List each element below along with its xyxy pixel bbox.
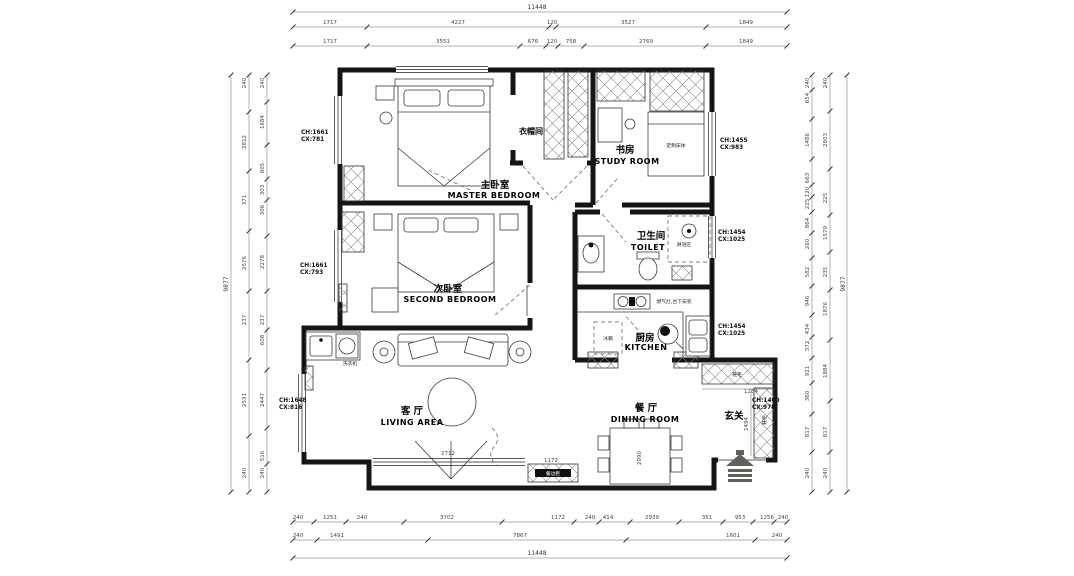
chx-left-top-ch: CH:1661: [301, 130, 329, 136]
doors: [415, 166, 638, 479]
chx-right-entry-ch: CH:1460: [752, 398, 780, 404]
sideboard-label: 餐边柜: [546, 470, 561, 477]
room-label-living-zh: 客 厅: [400, 405, 424, 417]
master-bed: [376, 79, 493, 186]
dim-label: 225: [805, 198, 811, 209]
room-label-second-en: SECOND BEDROOM: [404, 295, 497, 304]
second-door-swing: [494, 285, 530, 316]
window-study-right: [707, 112, 717, 176]
dim-label: 120: [547, 39, 558, 45]
dim-label: 240: [242, 467, 248, 478]
room-label-dining-en: DINING ROOM: [611, 415, 680, 424]
second-nightstand-right: [500, 214, 518, 230]
dim-label: 371: [242, 195, 248, 206]
dim-label: 1876: [823, 302, 829, 316]
chx-right-top-ch: CH:1455: [720, 138, 748, 144]
chx-right-top-cx: CX:983: [720, 145, 743, 151]
dim-label: 3551: [436, 39, 450, 45]
dim-label: 240: [778, 515, 789, 521]
dim-label: 1601: [726, 533, 740, 539]
dim-label: 2278: [260, 255, 266, 269]
study-door-swing: [596, 178, 618, 203]
room-label-master-zh: 主卧室: [481, 179, 510, 191]
dim-label: 1486: [805, 133, 811, 147]
dim-label: 240: [805, 467, 811, 478]
chx-right-kitchen-ch: CH:1454: [718, 324, 746, 330]
dim-label: 1884: [823, 364, 829, 378]
dim-label: 240: [805, 77, 811, 88]
study-wardrobe-1: [597, 71, 645, 101]
dim-label: 240: [585, 515, 596, 521]
second-wardrobe: [342, 212, 364, 252]
chx-left-top-cx: CX:781: [301, 137, 324, 143]
dim-label: 414: [603, 515, 614, 521]
chx-right-toilet-ch: CH:1454: [718, 230, 746, 236]
dim-label: 953: [735, 515, 746, 521]
dim-label: 2447: [260, 393, 266, 407]
dim-label: 3702: [440, 515, 454, 521]
dim-label: 1684: [260, 115, 266, 129]
dim-label: 946: [805, 295, 811, 306]
shower-label: 淋浴区: [677, 241, 692, 248]
dim-label: 9877: [223, 276, 230, 291]
master-stool: [380, 112, 392, 124]
chx-left-bottom-cx: CX:816: [279, 405, 302, 411]
chx-right-kitchen-cx: CX:1025: [718, 331, 745, 337]
dim-label: 1717: [323, 20, 337, 26]
room-label-cloak-zh: 衣帽间: [519, 126, 543, 136]
chx-left-mid-ch: CH:1661: [300, 263, 328, 269]
dim-label: 864: [805, 217, 811, 228]
dim-label: 582: [805, 267, 811, 278]
room-label-toilet-en: TOILET: [631, 243, 665, 252]
window-living-bottom: [373, 457, 525, 467]
second-desk: [372, 288, 398, 312]
dim-label: 1717: [323, 39, 337, 45]
dim-label: 608: [260, 334, 266, 345]
dim-label: 225: [823, 192, 829, 203]
master-nightstand: [376, 86, 394, 100]
dim-label: 1849: [739, 20, 753, 26]
cloak-wardrobe-2: [568, 71, 588, 157]
room-label-study-zh: 书房: [615, 144, 634, 156]
dim-label: 120: [547, 20, 558, 26]
living-sofa: [373, 334, 531, 366]
dim-label: 120: [805, 186, 811, 197]
dim-label: 9877: [840, 276, 847, 291]
dim-label: 237: [260, 314, 266, 325]
dim-label: 237: [242, 314, 248, 325]
dim-label: 2803: [823, 133, 829, 147]
dim-label: 240: [293, 515, 304, 521]
floorplan-drawing: 11448 1717 4227 120 3527 1849 1717 3551 …: [0, 0, 1074, 576]
dim-label: 240: [260, 467, 266, 478]
window-toilet-right: [707, 216, 717, 258]
shoe-top-label: 鞋柜: [732, 371, 742, 378]
dim-label: 434: [805, 323, 811, 334]
inner-dim-1494: 1494: [744, 417, 750, 431]
second-radiator: [339, 284, 347, 312]
washer-label: 洗衣机: [343, 360, 358, 367]
dim-label: 4227: [451, 20, 465, 26]
dim-label: 654: [805, 92, 811, 103]
toilet-cabinet: [672, 266, 692, 280]
floorplan-canvas: 11448 1717 4227 120 3527 1849 1717 3551 …: [0, 0, 1074, 576]
dim-label: 2812: [242, 135, 248, 149]
inner-dim-2990: 2990: [637, 451, 643, 465]
dim-label: 11448: [527, 550, 546, 557]
dim-label: 817: [805, 426, 811, 437]
window-master-top: [396, 65, 488, 74]
dims-right: 240 654 1486 663 120 225 864 260 582 946…: [805, 77, 847, 478]
study-bed-label: 定制床体: [666, 142, 685, 149]
dims-left: 9877 240 2812 371 2576 237 2531 240 240 …: [223, 77, 266, 478]
dim-label: 2769: [639, 39, 653, 45]
inner-dim-2712: 2712: [441, 451, 455, 457]
fridge-label: 冰箱: [603, 335, 613, 342]
inner-dim-1172: 1172: [544, 458, 558, 464]
chx-right-entry-cx: CX:978: [752, 405, 775, 411]
dim-label: 1579: [823, 226, 829, 240]
dim-label: 676: [528, 39, 539, 45]
second-nightstand-left: [374, 214, 392, 230]
room-label-second-zh: 次卧室: [434, 283, 463, 295]
dim-label: 303: [260, 184, 266, 195]
room-label-living-en: LIVING AREA: [381, 418, 444, 427]
room-label-kitchen-en: KITCHEN: [625, 343, 668, 352]
shower-area: [668, 216, 710, 262]
dim-label: 240: [293, 533, 304, 539]
dim-label: 1256: [760, 515, 774, 521]
chx-right-toilet-cx: CX:1025: [718, 237, 745, 243]
study-wardrobe-2: [650, 71, 704, 111]
dim-label: 7867: [513, 533, 527, 539]
dim-label: 306: [260, 204, 266, 215]
shoe-side-label: 鞋柜: [761, 415, 768, 425]
dim-label: 240: [260, 77, 266, 88]
dim-label: 1849: [739, 39, 753, 45]
dim-label: 921: [805, 366, 811, 377]
dim-label: 516: [260, 450, 266, 461]
dim-label: 240: [242, 77, 248, 88]
window-master-left: [333, 96, 343, 164]
dim-label: 817: [823, 426, 829, 437]
dim-label: 235: [823, 266, 829, 277]
dim-label: 758: [566, 39, 577, 45]
dim-label: 1172: [551, 515, 565, 521]
living-radiator: [305, 366, 313, 390]
laundry-corner: [306, 332, 360, 360]
toilet-door-swing: [602, 214, 626, 242]
study-desk: [598, 108, 635, 142]
room-label-master-en: MASTER BEDROOM: [448, 191, 541, 200]
kitchen-cabinet-left: [588, 352, 618, 368]
dim-label: 240: [823, 467, 829, 478]
dim-label: 240: [357, 515, 368, 521]
dim-label: 805: [260, 162, 266, 173]
cloak-wardrobe-1: [544, 71, 564, 159]
dim-label: 2531: [242, 393, 248, 407]
dim-label: 2939: [645, 515, 659, 521]
dim-label: 360: [805, 390, 811, 401]
kitchen-label-leader: [624, 314, 638, 330]
stove-note: 燃气灶,台下安装: [656, 298, 691, 305]
dim-label: 663: [805, 172, 811, 183]
room-label-entry-zh: 玄关: [724, 410, 744, 422]
dim-label: 1251: [323, 515, 337, 521]
chx-left-mid-cx: CX:793: [300, 270, 323, 276]
master-wardrobe: [344, 166, 364, 201]
dim-label: 240: [772, 533, 783, 539]
dim-label: 11448: [527, 4, 546, 11]
dim-label: 351: [702, 515, 713, 521]
room-label-dining-zh: 餐 厅: [634, 402, 658, 414]
dim-label: 240: [823, 77, 829, 88]
room-label-toilet-zh: 卫生间: [637, 230, 666, 242]
dim-label: 3527: [621, 20, 635, 26]
entry-mat: [726, 450, 754, 482]
dim-label: 372: [805, 341, 811, 352]
dims-top: 11448 1717 4227 120 3527 1849 1717 3551 …: [323, 4, 753, 45]
dim-label: 260: [805, 238, 811, 249]
room-label-study-en: STUDY ROOM: [594, 157, 659, 166]
dim-label: 1491: [330, 533, 344, 539]
dims-bottom: 240 1251 240 3702 1172 240 414 2939 351 …: [293, 515, 789, 557]
chx-left-bottom-ch: CH:1648: [279, 398, 307, 404]
dim-label: 2576: [242, 256, 248, 270]
